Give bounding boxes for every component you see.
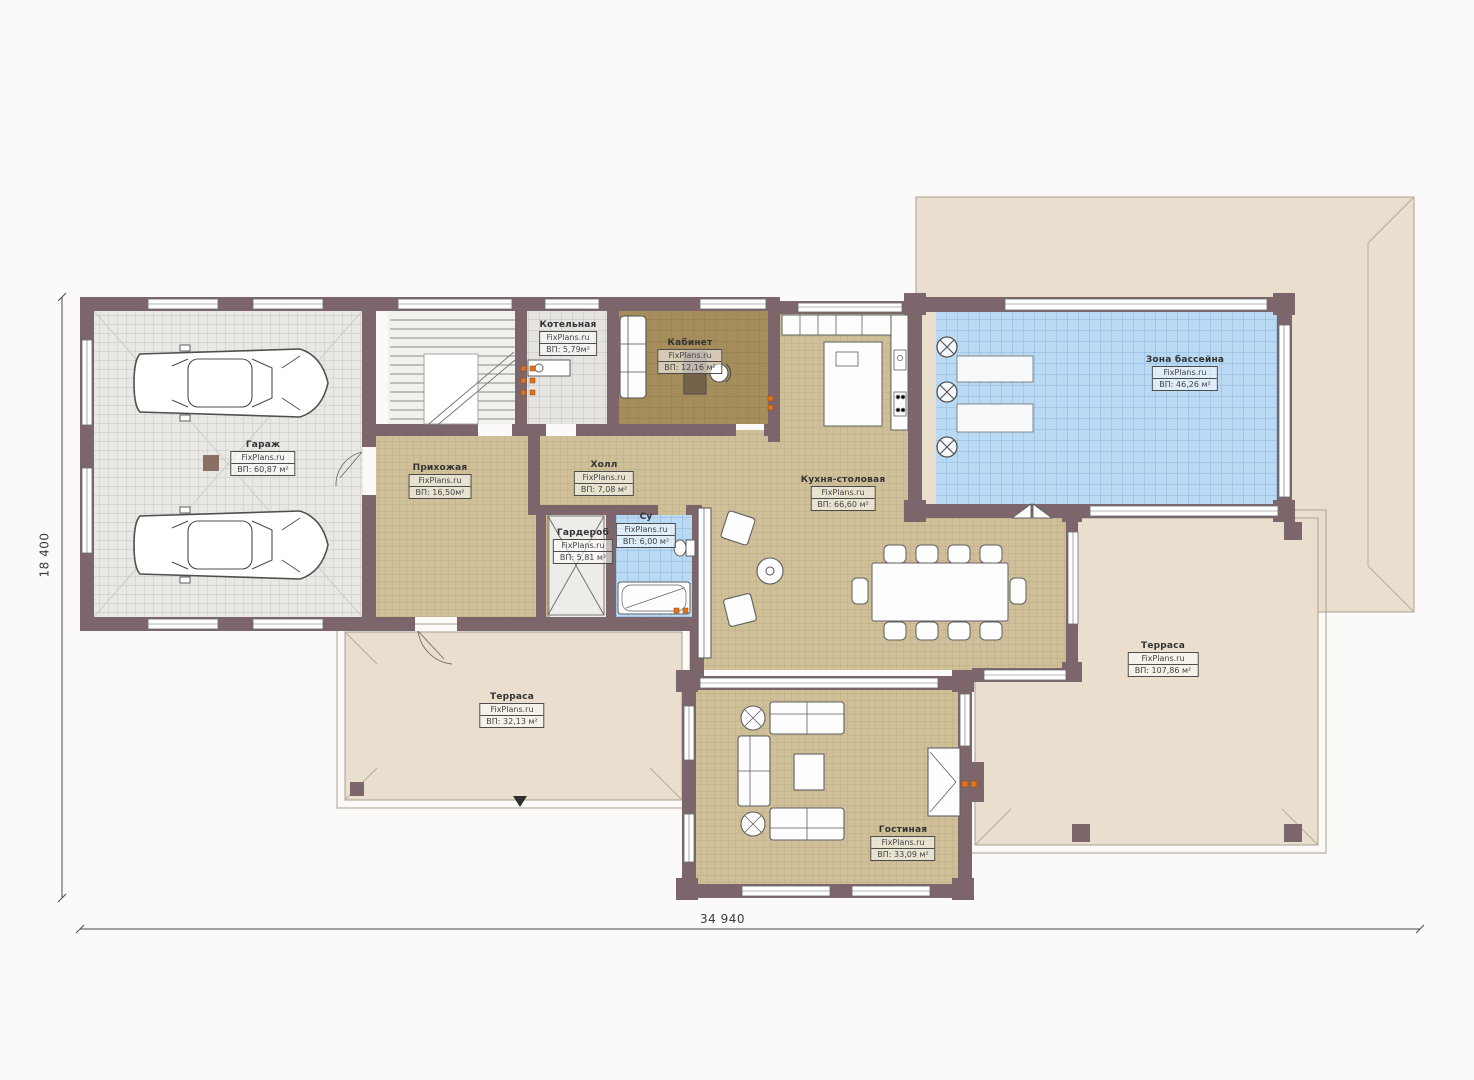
pool-step (957, 356, 1033, 382)
hall-partition (698, 508, 711, 658)
office-desk (684, 352, 706, 394)
office-sofa (620, 316, 646, 398)
kitchen-island (824, 342, 882, 426)
terrace-left-area (337, 624, 690, 808)
dining-table (872, 563, 1008, 621)
kitchen-counter-right (891, 315, 908, 430)
fireplace (928, 748, 960, 816)
toilet (674, 540, 686, 556)
toilet-tank (686, 540, 695, 556)
entrance-arrow-icon (513, 796, 527, 807)
garage-car-bottom (134, 507, 328, 583)
office-chair (710, 364, 728, 382)
floor-plan-canvas: Гараж FixPlans.ru ВП: 60,87 м² Котельная… (0, 0, 1474, 1080)
wardrobe-floor (550, 515, 606, 617)
armchair (723, 593, 757, 627)
side-table (757, 558, 783, 584)
kitchen-counter-top (782, 315, 892, 335)
dimension-height-label: 18 400 (38, 533, 52, 578)
pool-step (957, 404, 1033, 432)
garage-drain (203, 455, 219, 471)
garage-car-top (134, 345, 328, 421)
dimension-width-label: 34 940 (700, 912, 745, 926)
coffee-table (794, 754, 824, 790)
